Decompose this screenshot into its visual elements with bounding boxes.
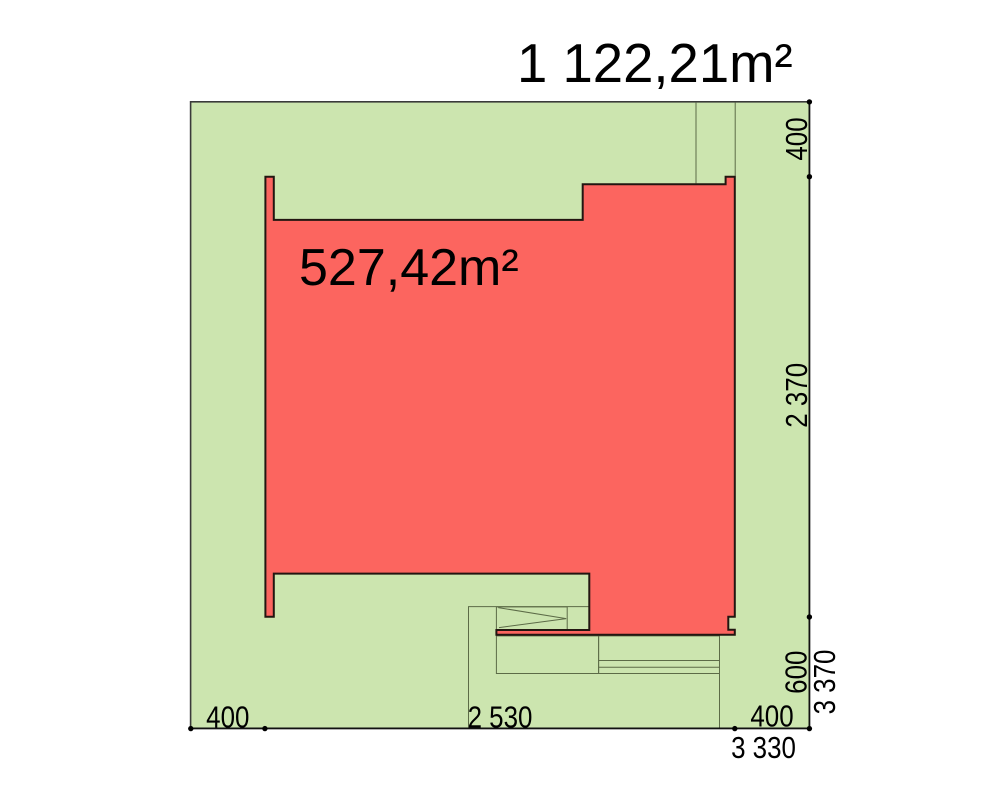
svg-text:1 122,21m²: 1 122,21m² [517, 33, 793, 94]
svg-text:2 530: 2 530 [468, 699, 533, 733]
svg-text:2 370: 2 370 [779, 363, 813, 428]
svg-text:3 330: 3 330 [731, 730, 796, 764]
svg-text:400: 400 [206, 699, 249, 733]
svg-text:3 370: 3 370 [807, 650, 841, 715]
svg-text:400: 400 [750, 698, 793, 732]
svg-text:400: 400 [779, 117, 813, 160]
svg-text:527,42m²: 527,42m² [299, 239, 519, 297]
